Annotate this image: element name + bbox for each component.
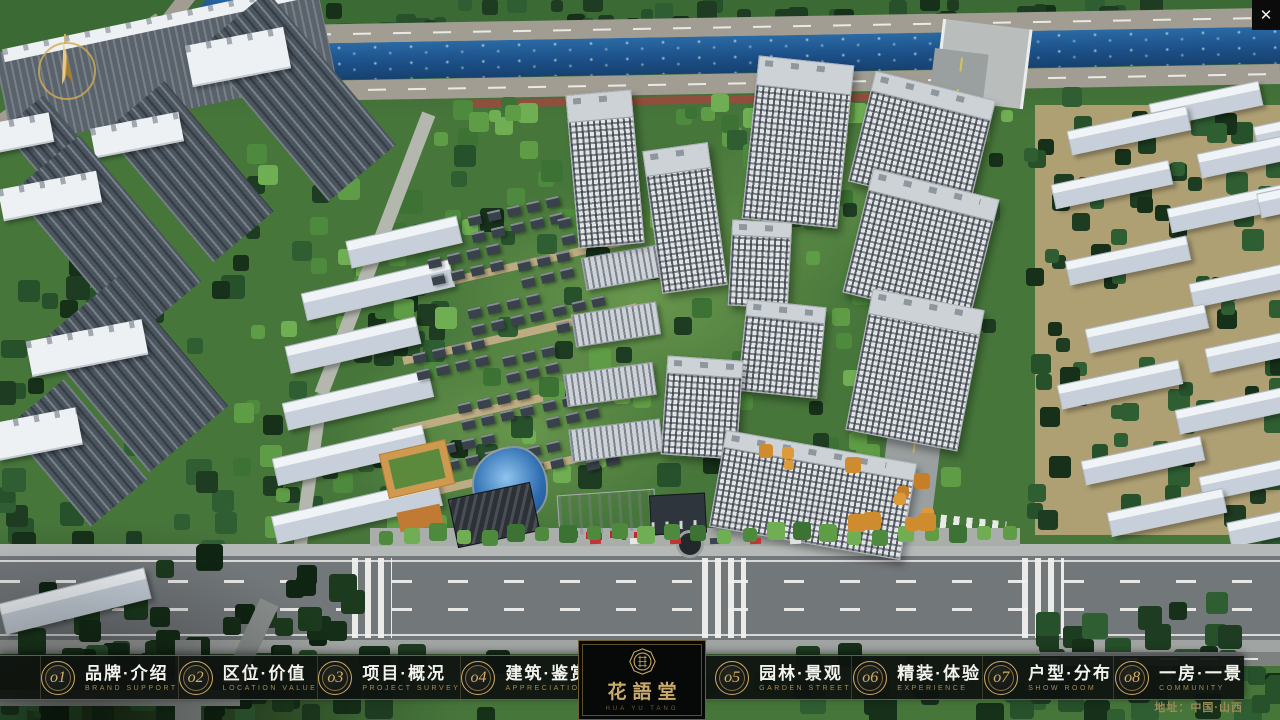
item-labels: 建筑·鉴赏APPRECIATION xyxy=(505,664,589,692)
item-label-cn: 园林·景观 xyxy=(759,664,843,683)
item-labels: 区位·价值LOCATION VALUE xyxy=(223,664,318,692)
item-number-badge: o8 xyxy=(1115,661,1149,695)
nav-group-right: o5园林·景观GARDEN STREETo6精装·体验EXPERIENCEo7户… xyxy=(715,656,1244,699)
compass-icon xyxy=(36,34,96,98)
nav-item-o1[interactable]: o1品牌·介绍BRAND SUPPORT xyxy=(41,656,179,699)
logo-title: 花語堂 xyxy=(601,677,682,704)
nav-item-o4[interactable]: o4建筑·鉴赏APPRECIATION xyxy=(461,656,589,699)
item-label-cn: 项目·概况 xyxy=(362,664,446,683)
item-label-cn: 户型·分布 xyxy=(1028,664,1112,683)
nav-item-o6[interactable]: o6精装·体验EXPERIENCE xyxy=(852,656,983,699)
item-number-badge: o5 xyxy=(715,661,749,695)
presentation-window: ✕ o1品牌·介绍BRAND SUPPORTo2区位·价值LOCATION VA… xyxy=(0,0,1280,720)
item-label-cn: 建筑·鉴赏 xyxy=(505,664,589,683)
item-label-cn: 一房·一景 xyxy=(1159,664,1243,683)
nav-item-o3[interactable]: o3项目·概况PROJECT SURVEY xyxy=(318,656,461,699)
item-number-badge: o4 xyxy=(461,661,495,695)
item-labels: 品牌·介绍BRAND SUPPORT xyxy=(85,664,178,692)
address-text: 地址：中国·山西 xyxy=(1154,699,1243,715)
item-labels: 园林·景观GARDEN STREET xyxy=(759,664,851,692)
masterplan-3d-view[interactable] xyxy=(0,0,1280,720)
item-labels: 项目·概况PROJECT SURVEY xyxy=(362,664,460,692)
south-side-roads xyxy=(0,0,1280,720)
item-number-badge: o7 xyxy=(984,661,1018,695)
item-label-cn: 精装·体验 xyxy=(897,664,981,683)
nav-item-o5[interactable]: o5园林·景观GARDEN STREET xyxy=(715,656,852,699)
item-label-en: LOCATION VALUE xyxy=(223,685,318,692)
nav-item-o8[interactable]: o8一房·一景COMMUNITY xyxy=(1114,656,1244,699)
nav-group-left: o1品牌·介绍BRAND SUPPORTo2区位·价值LOCATION VALU… xyxy=(41,656,589,699)
item-labels: 精装·体验EXPERIENCE xyxy=(897,664,981,692)
item-labels: 一房·一景COMMUNITY xyxy=(1159,664,1243,692)
item-labels: 户型·分布SHOW ROOM xyxy=(1028,664,1112,692)
item-number-badge: o6 xyxy=(853,661,887,695)
brand-logo[interactable]: 花語堂 HUA YU TANG xyxy=(578,640,706,720)
item-label-en: COMMUNITY xyxy=(1159,685,1225,692)
nav-spacer xyxy=(0,656,41,699)
item-label-en: GARDEN STREET xyxy=(759,685,851,692)
item-label-en: PROJECT SURVEY xyxy=(362,685,460,692)
nav-item-o7[interactable]: o7户型·分布SHOW ROOM xyxy=(983,656,1114,699)
close-button[interactable]: ✕ xyxy=(1252,0,1280,30)
item-number-badge: o3 xyxy=(318,661,352,695)
item-label-cn: 区位·价值 xyxy=(223,664,307,683)
item-label-en: BRAND SUPPORT xyxy=(85,685,178,692)
item-number-badge: o2 xyxy=(179,661,213,695)
building-slab xyxy=(0,567,152,634)
brand-seal-icon xyxy=(629,648,656,675)
item-number-badge: o1 xyxy=(41,661,75,695)
item-label-en: APPRECIATION xyxy=(505,685,587,692)
item-label-cn: 品牌·介绍 xyxy=(85,664,169,683)
nav-item-o2[interactable]: o2区位·价值LOCATION VALUE xyxy=(179,656,319,699)
logo-caption: HUA YU TANG xyxy=(605,706,678,712)
item-label-en: EXPERIENCE xyxy=(897,685,967,692)
item-label-en: SHOW ROOM xyxy=(1028,685,1096,692)
